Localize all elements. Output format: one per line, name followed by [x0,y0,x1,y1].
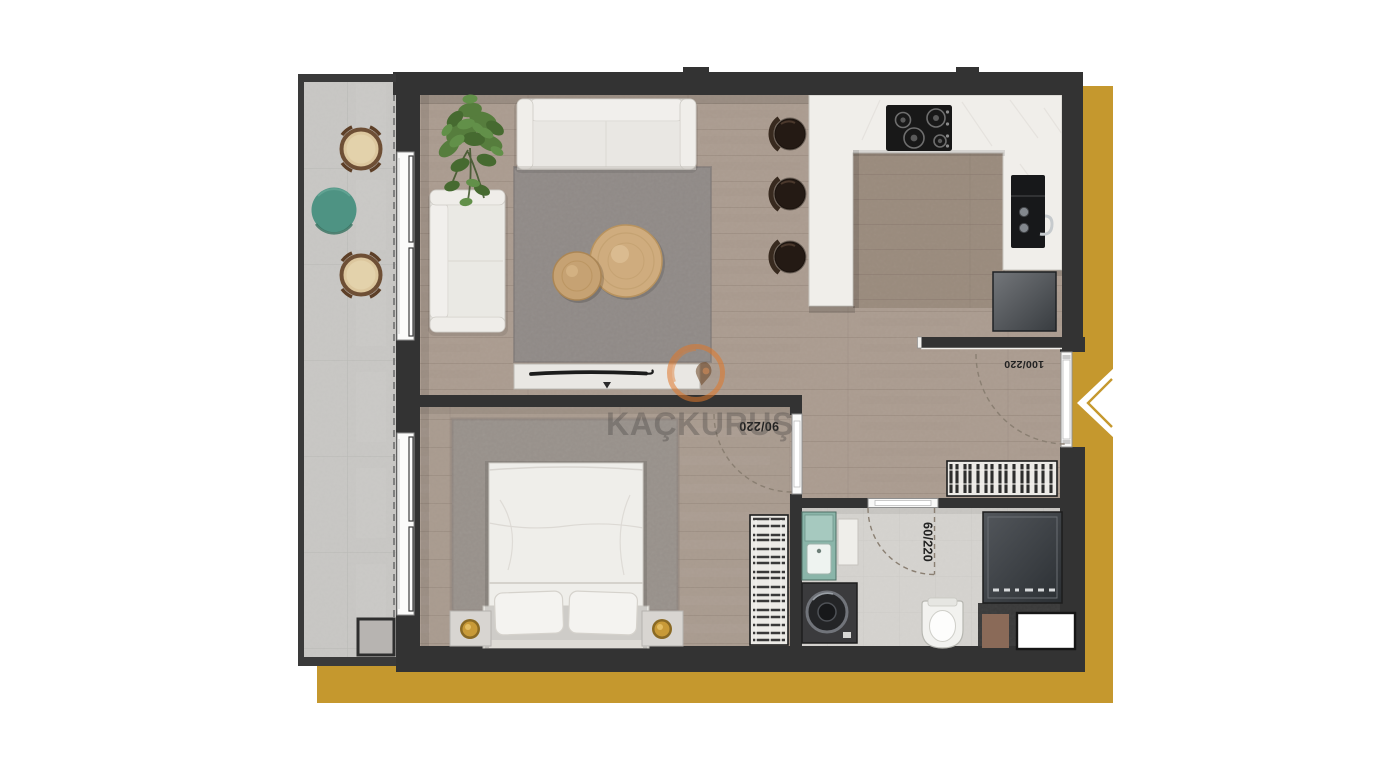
svg-text:60/220: 60/220 [921,522,935,562]
svg-text:KAÇKURUŞ: KAÇKURUŞ [606,406,794,442]
svg-text:100/220: 100/220 [1004,358,1044,370]
